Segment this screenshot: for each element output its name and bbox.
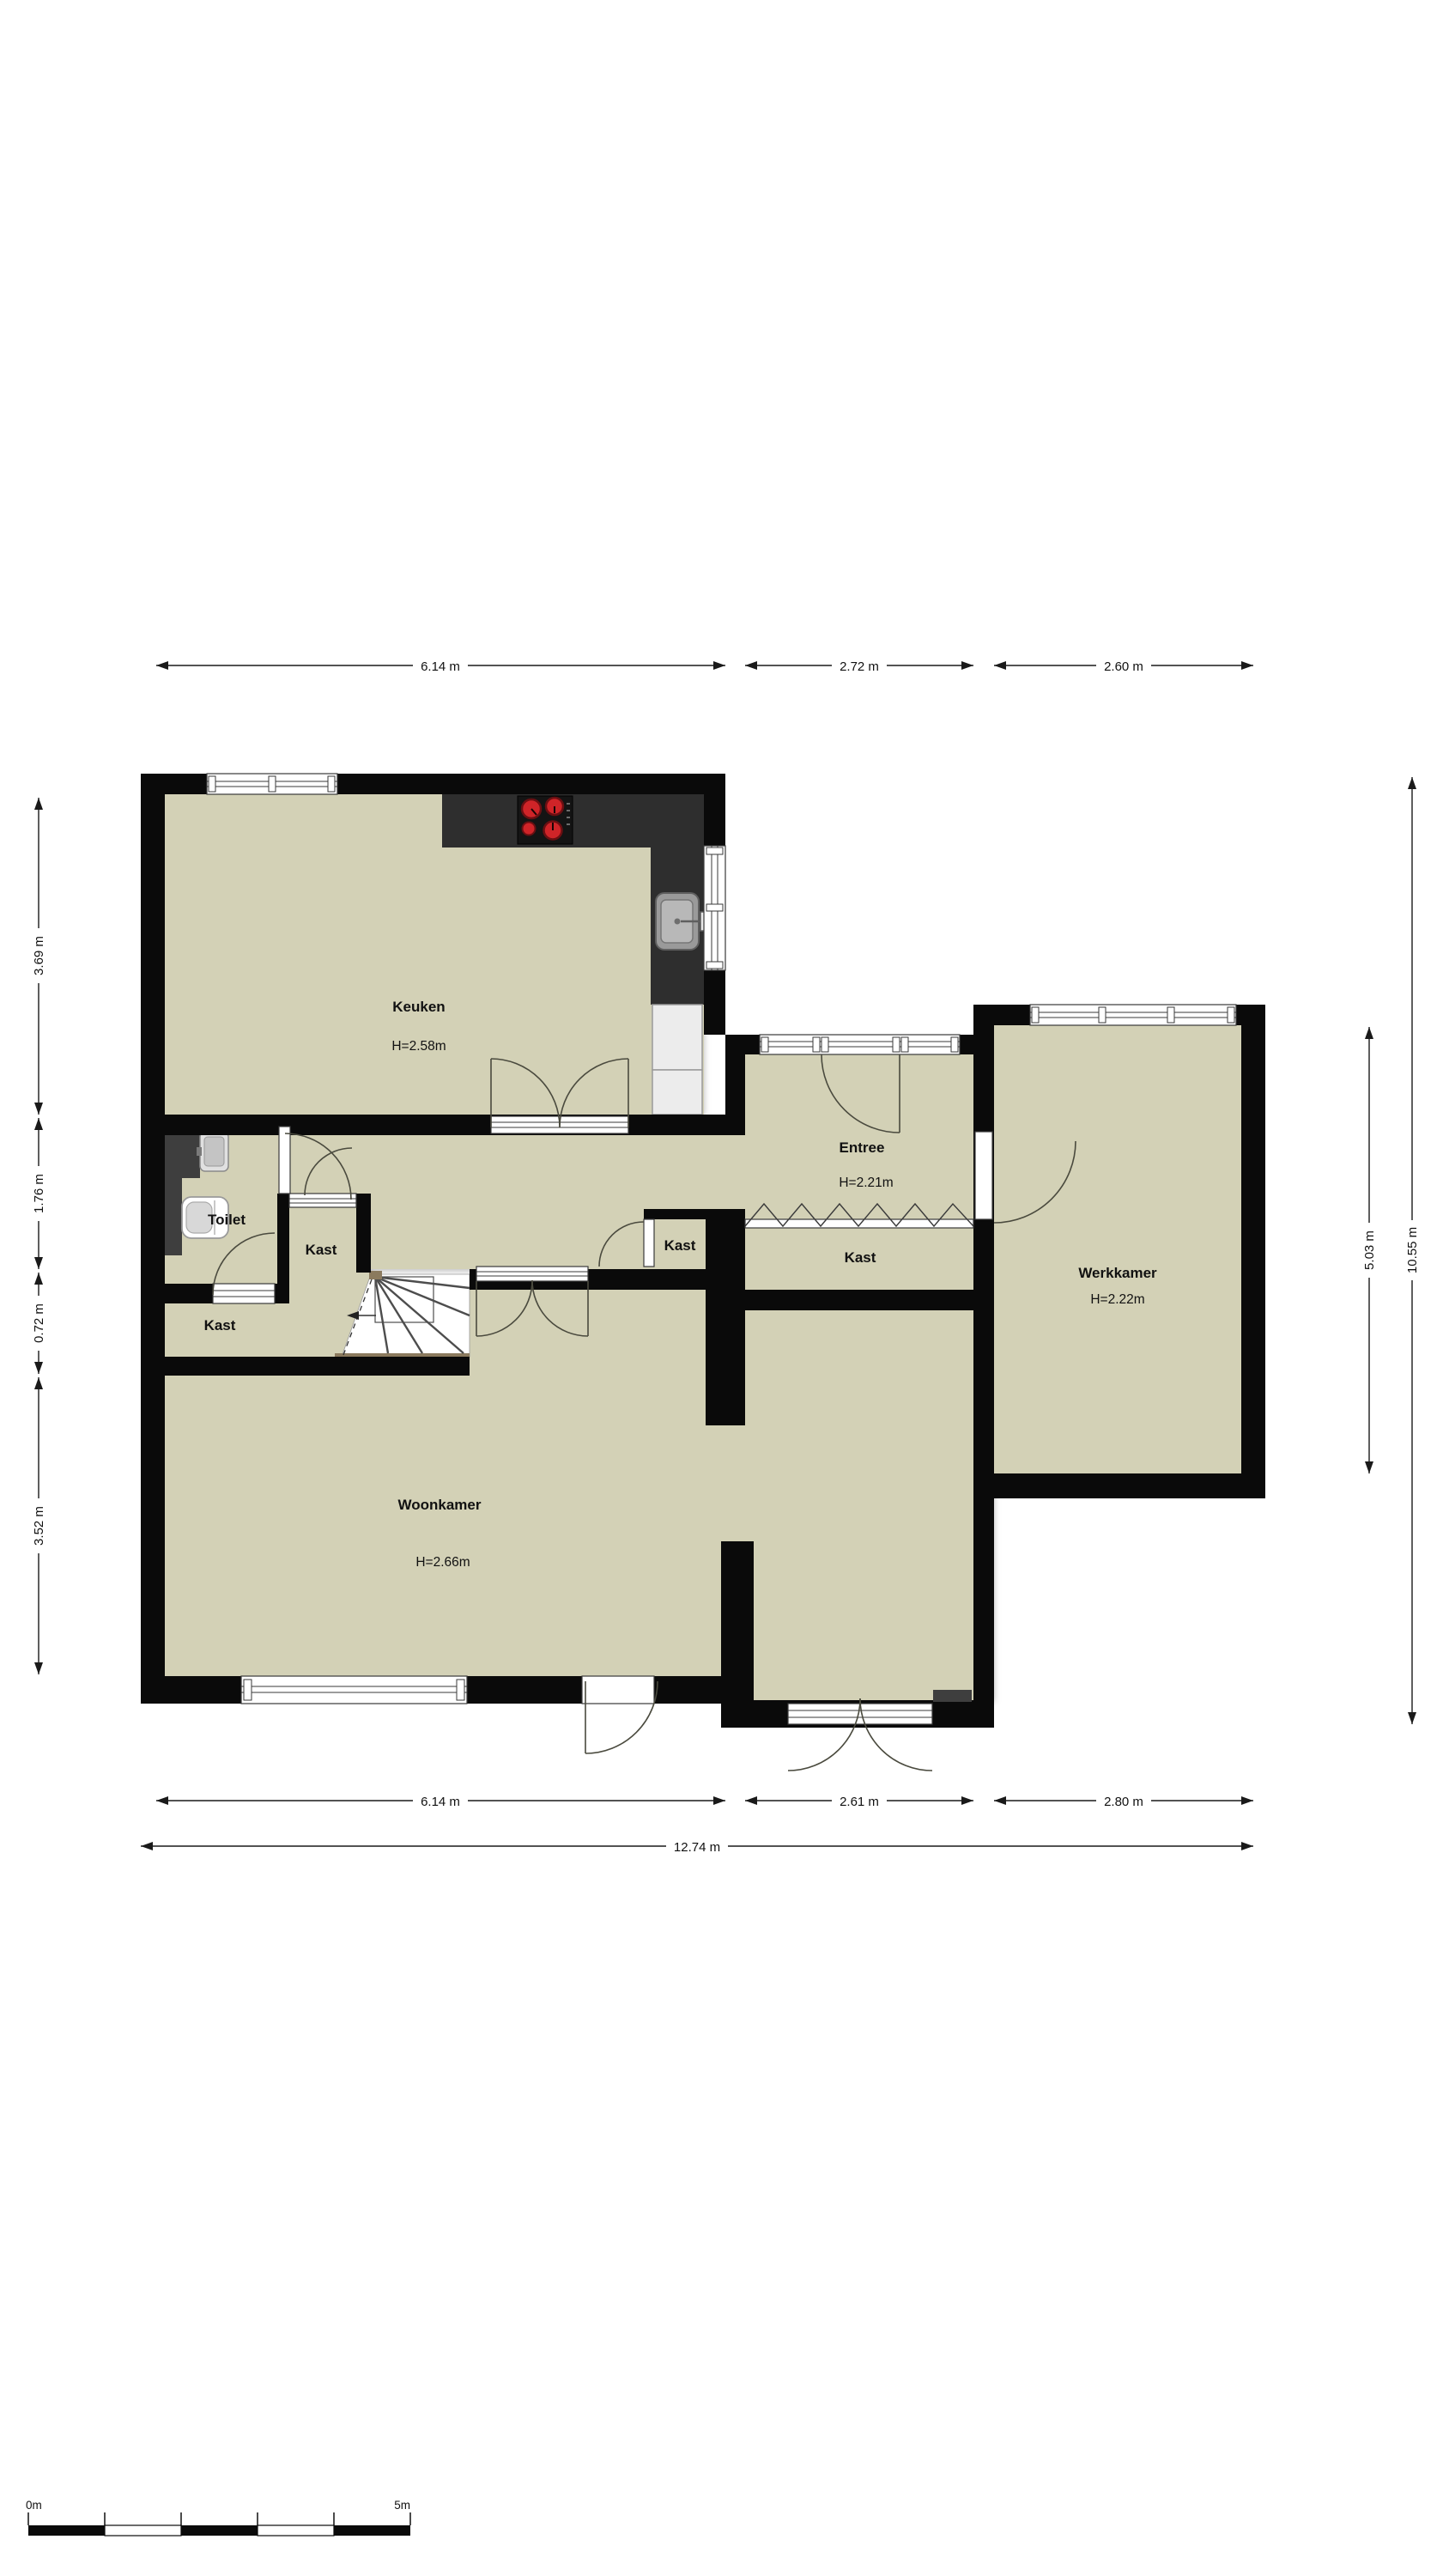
dim-left-4: 3.52 m <box>32 1506 46 1546</box>
dim-right-2: 10.55 m <box>1405 1227 1420 1273</box>
doorsill-kast-lower <box>213 1284 275 1303</box>
doorsill-kast-middle <box>289 1194 356 1207</box>
floor-woonkamer-upper <box>470 1290 725 1676</box>
room-label-kast-lower: Kast <box>204 1317 236 1334</box>
room-label-kast-entree: Kast <box>845 1249 876 1266</box>
scale-bar: 0m 5m <box>26 2499 410 2536</box>
room-height-werkkamer: H=2.22m <box>1090 1292 1144 1307</box>
dim-right-1: 5.03 m <box>1362 1230 1377 1270</box>
wall-middle-right <box>973 1025 994 1728</box>
floor-passage <box>725 1130 745 1209</box>
wall-kastmiddle-right <box>356 1194 371 1273</box>
room-height-entree: H=2.21m <box>839 1176 893 1190</box>
doorframe-werkkamer <box>975 1132 992 1219</box>
dim-bottom-1: 6.14 m <box>421 1795 460 1809</box>
room-label-werkkamer: Werkkamer <box>1078 1265 1157 1281</box>
dooropening-bottom-single <box>582 1676 654 1704</box>
dim-left-1: 3.69 m <box>32 936 46 975</box>
room-label-toilet: Toilet <box>208 1212 246 1228</box>
dim-top-3: 2.60 m <box>1104 659 1143 674</box>
doorsill-woonkamer <box>476 1267 588 1281</box>
dim-left-3: 0.72 m <box>32 1303 46 1343</box>
room-label-woonkamer: Woonkamer <box>398 1497 482 1513</box>
floorplan-canvas: Keuken H=2.58m Entree H=2.21m Werkkamer … <box>0 0 1449 2576</box>
dim-bottom-2: 2.61 m <box>840 1795 879 1809</box>
dim-top-1: 6.14 m <box>421 659 460 674</box>
wall-werkkamer-bottom <box>973 1473 1265 1498</box>
wall-werkkamer-right <box>1241 1005 1265 1498</box>
kitchen-appliance-icon <box>652 1005 702 1115</box>
window-werkkamer-top <box>1030 1005 1236 1025</box>
wall-toilet-divider <box>277 1194 289 1284</box>
window-keuken-right <box>704 846 725 970</box>
window-woonkamer-bottom <box>241 1676 467 1704</box>
scale-end-label: 5m <box>394 2499 410 2512</box>
wall-stub-dark <box>933 1690 972 1702</box>
dim-top-2: 2.72 m <box>840 659 879 674</box>
room-label-kast-middle: Kast <box>306 1242 337 1258</box>
room-label-entree: Entree <box>840 1139 885 1156</box>
doorframe-kast-small <box>644 1219 654 1267</box>
cooktop-icon <box>518 796 573 844</box>
room-label-keuken: Keuken <box>392 999 445 1015</box>
stair-newel <box>369 1271 382 1279</box>
room-height-woonkamer: H=2.66m <box>415 1555 470 1570</box>
dim-left-2: 1.76 m <box>32 1174 46 1213</box>
room-label-kast-small: Kast <box>664 1237 696 1254</box>
wall-kast-small-top <box>644 1209 706 1219</box>
dim-bottom-total: 12.74 m <box>674 1840 720 1855</box>
wall-kitchen-bottom <box>141 1115 745 1135</box>
room-height-keuken: H=2.58m <box>391 1039 446 1054</box>
dim-bottom-3: 2.80 m <box>1104 1795 1143 1809</box>
wall-outer-left <box>141 774 165 1704</box>
window-entree-top <box>760 1035 960 1054</box>
doorframe-toilet <box>279 1127 290 1194</box>
window-keuken-top <box>207 774 337 794</box>
toilet-sink-icon <box>197 1132 228 1171</box>
floorplan-page: Keuken H=2.58m Entree H=2.21m Werkkamer … <box>0 0 1449 2576</box>
wall-entreekast-bottom <box>745 1290 973 1310</box>
floor-werkkamer <box>994 1025 1241 1473</box>
scale-start-label: 0m <box>26 2499 42 2512</box>
wall-middle-big <box>706 1209 745 1425</box>
wall-entree-left <box>725 1054 745 1130</box>
wall-kastrow-bottom <box>141 1357 470 1376</box>
